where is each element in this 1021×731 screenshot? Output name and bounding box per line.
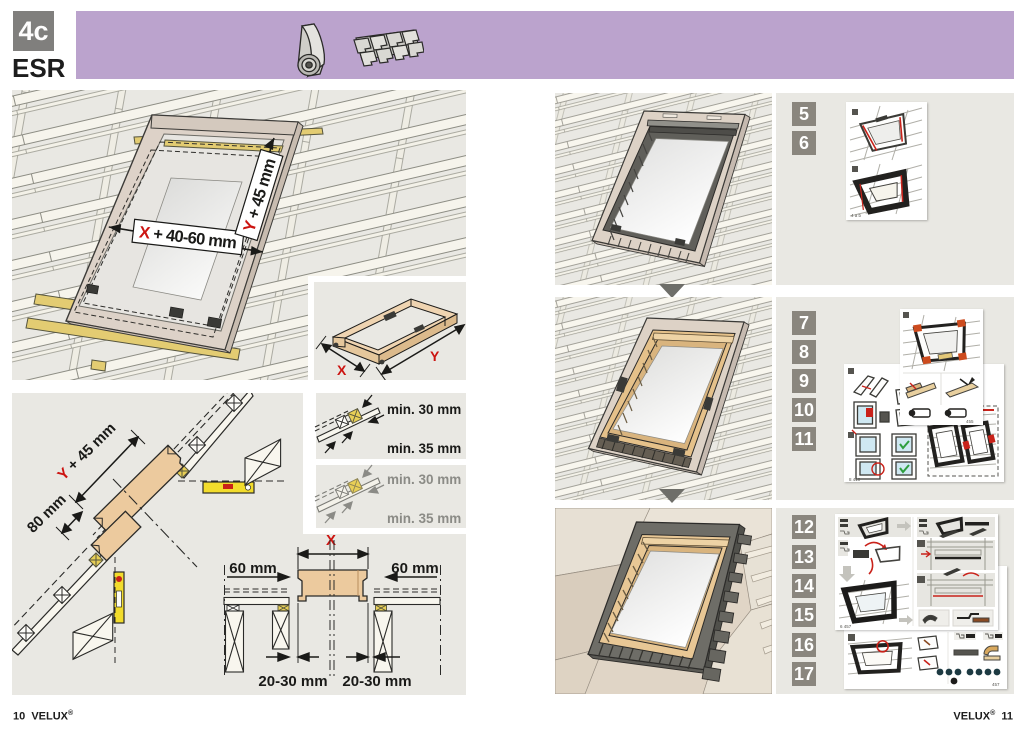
svg-text:min. 30 mm: min. 30 mm — [387, 402, 461, 417]
svg-text:min. 30 mm: min. 30 mm — [387, 472, 461, 487]
svg-text:X: X — [337, 362, 347, 378]
svg-text:8 410: 8 410 — [849, 477, 861, 482]
svg-text:6 457: 6 457 — [840, 624, 852, 629]
svg-text:455: 455 — [966, 419, 974, 424]
svg-text:X: X — [326, 532, 336, 549]
svg-text:60 mm: 60 mm — [229, 560, 277, 577]
svg-text:20-30 mm: 20-30 mm — [258, 673, 327, 690]
svg-text:20-30 mm: 20-30 mm — [342, 673, 411, 690]
svg-text:457: 457 — [992, 682, 1000, 687]
svg-text:4 a b: 4 a b — [851, 213, 862, 218]
svg-text:60 mm: 60 mm — [391, 560, 439, 577]
svg-text:min. 35 mm: min. 35 mm — [387, 441, 461, 456]
svg-text:min. 35 mm: min. 35 mm — [387, 511, 461, 526]
svg-text:Y: Y — [430, 348, 440, 364]
